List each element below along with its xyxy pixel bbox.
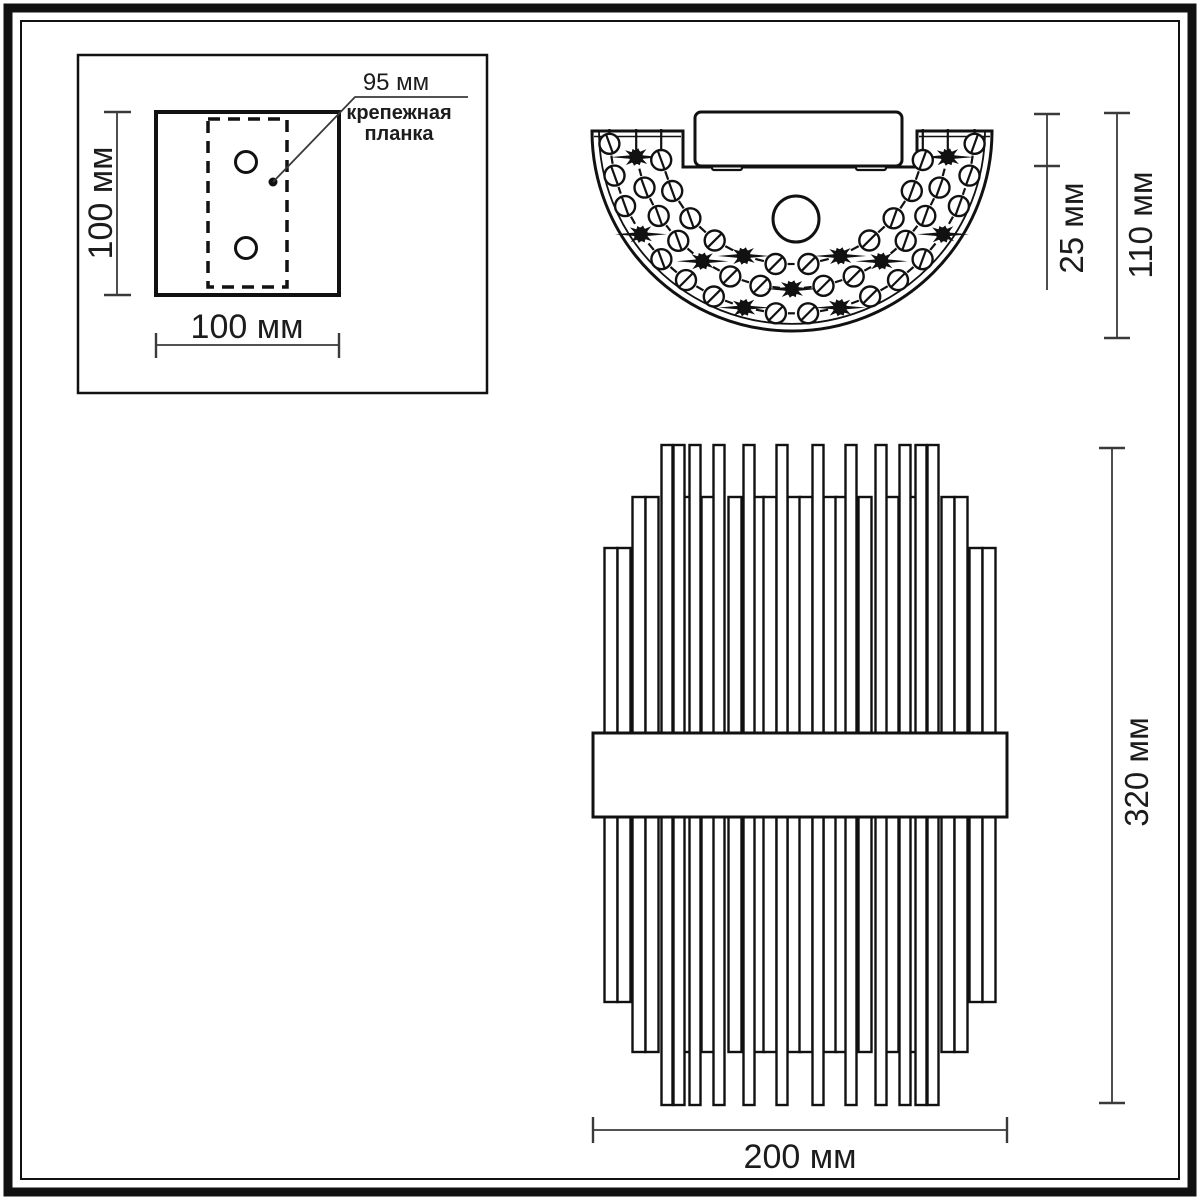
inner-frame <box>21 21 1179 1179</box>
backplate-square <box>156 112 339 295</box>
bracket-name-line2: планка <box>364 123 434 145</box>
chain-link <box>772 287 780 288</box>
chain-link <box>804 287 812 288</box>
plate-width-label: 100 мм <box>191 308 304 346</box>
bracket-callout: 95 мм крепежная планка <box>269 69 469 187</box>
center-band <box>593 733 1007 817</box>
mounting-plate-view: 100 мм 100 мм 95 мм крепежная планка <box>78 55 487 393</box>
lamp-top-view: 25 мм 110 мм <box>592 112 1159 338</box>
screw-hole-top <box>236 152 257 173</box>
chain-link <box>971 156 972 164</box>
technical-drawing-page: 100 мм 100 мм 95 мм крепежная планка <box>0 0 1200 1200</box>
chain-link <box>756 310 764 312</box>
bracket-name-line1: крепежная <box>346 102 451 124</box>
plate-height-dimension: 100 мм <box>82 112 131 295</box>
chain-link <box>611 156 612 164</box>
lamp-width-label: 200 мм <box>744 1138 857 1176</box>
box-depth-label: 25 мм <box>1053 182 1090 273</box>
bracket-width-label: 95 мм <box>363 69 429 96</box>
lamp-width-dimension: 200 мм <box>593 1117 1007 1176</box>
mounting-bracket-dashed-rect <box>208 119 287 287</box>
lamp-height-dimension: 320 мм <box>1099 448 1155 1103</box>
lamp-socket-circle <box>773 196 819 242</box>
plate-width-dimension: 100 мм <box>156 308 339 358</box>
lamp-front-view: 320 мм 200 мм <box>593 445 1155 1176</box>
total-depth-dimension: 110 мм <box>1104 113 1159 338</box>
lamp-height-label: 320 мм <box>1118 717 1155 827</box>
chain-link <box>820 310 828 312</box>
driver-box <box>695 112 902 166</box>
diagram-svg: 100 мм 100 мм 95 мм крепежная планка <box>0 0 1200 1200</box>
plate-height-label: 100 мм <box>82 147 120 260</box>
total-depth-label: 110 мм <box>1122 171 1159 278</box>
box-depth-dimension: 25 мм <box>1034 114 1090 290</box>
screw-hole-bottom <box>236 238 257 259</box>
